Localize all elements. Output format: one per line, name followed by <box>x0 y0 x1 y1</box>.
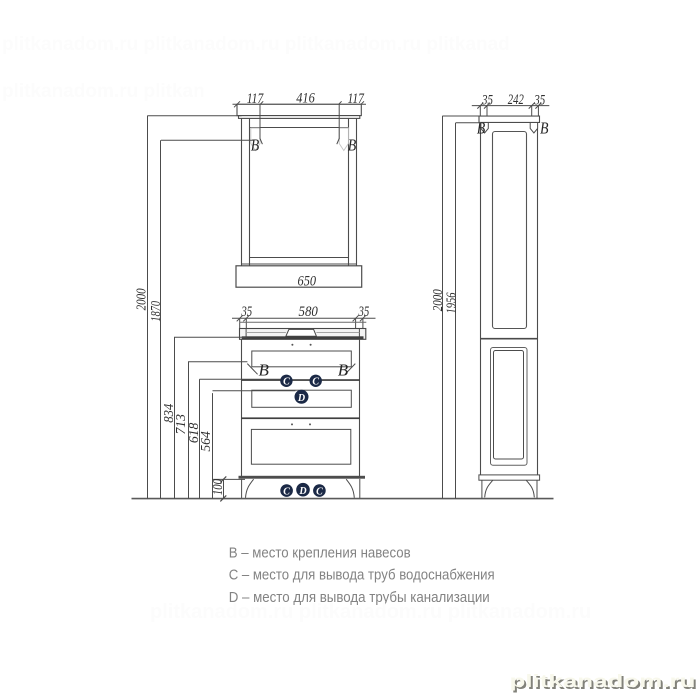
svg-text:C: C <box>316 487 323 498</box>
svg-text:B – место крепления навесов: B – место крепления навесов <box>229 544 411 561</box>
svg-text:B: B <box>338 360 349 379</box>
svg-text:C: C <box>283 377 290 388</box>
svg-text:564: 564 <box>198 431 213 452</box>
svg-text:plitkanadom.ru plitkan: plitkanadom.ru plitkan <box>2 81 205 102</box>
svg-text:B: B <box>348 136 357 155</box>
svg-text:2000: 2000 <box>133 288 148 310</box>
svg-text:B: B <box>477 119 486 138</box>
svg-text:650: 650 <box>298 274 317 290</box>
svg-text:D: D <box>298 486 306 497</box>
svg-text:B: B <box>540 119 549 138</box>
svg-text:C – место для вывода труб водо: C – место для вывода труб водоснабжения <box>229 567 495 584</box>
svg-text:1870: 1870 <box>148 301 163 322</box>
svg-text:D: D <box>297 393 305 404</box>
svg-text:plitkanadom.ru plitkanadom.ru: plitkanadom.ru plitkanadom.ru plitkanado… <box>2 34 510 55</box>
svg-text:100: 100 <box>210 479 225 495</box>
svg-text:B: B <box>259 360 270 379</box>
svg-text:plitkanadom.ru plitkanadom.ru: plitkanadom.ru plitkanadom.ru plitkanado… <box>150 601 591 623</box>
svg-text:C: C <box>283 487 290 498</box>
svg-text:B: B <box>251 136 260 155</box>
svg-text:C: C <box>312 377 319 388</box>
svg-text:1956: 1956 <box>443 292 458 313</box>
svg-text:plitkanadom.ru: plitkanadom.ru <box>510 671 696 691</box>
